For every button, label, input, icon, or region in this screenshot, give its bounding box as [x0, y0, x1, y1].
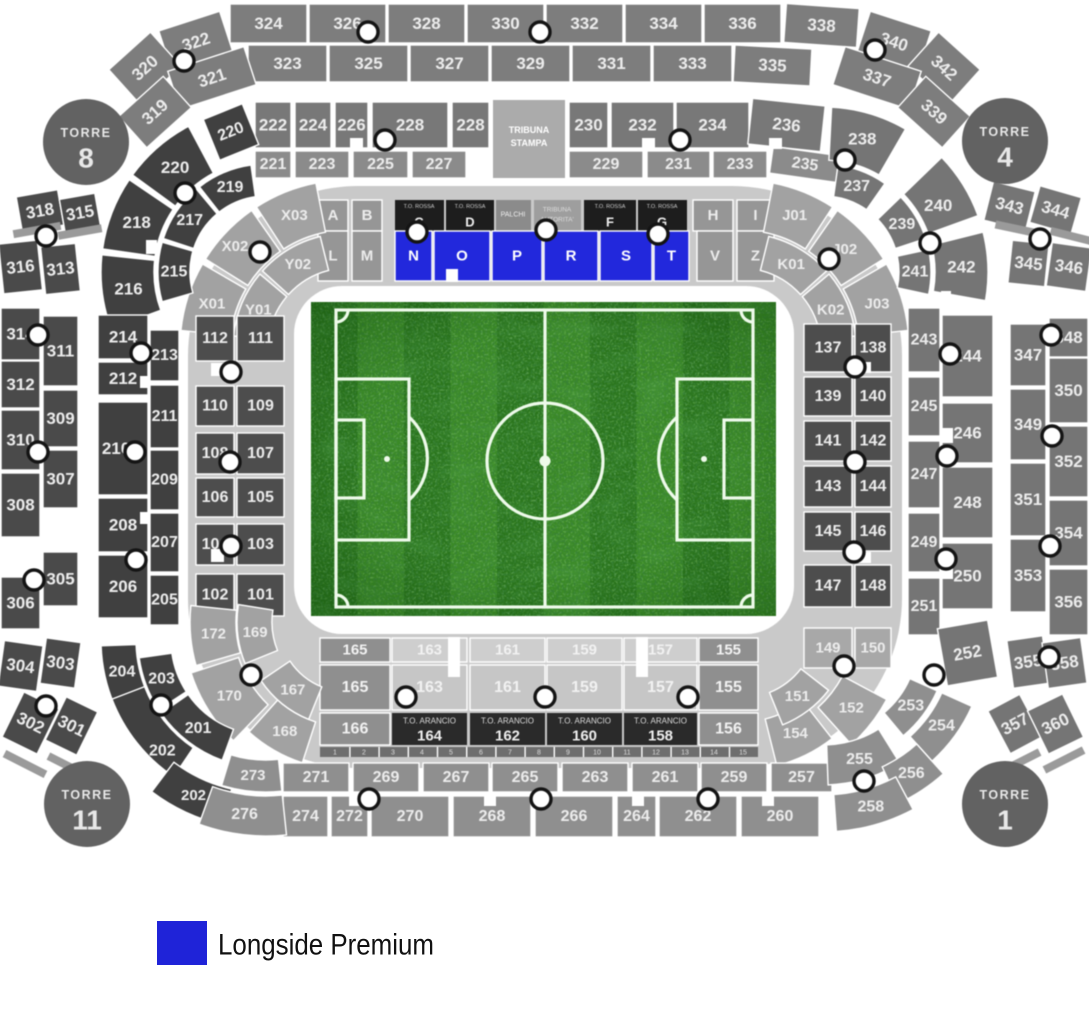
svg-text:260: 260	[767, 808, 794, 825]
svg-text:102: 102	[202, 587, 229, 604]
svg-text:PALCHI: PALCHI	[501, 212, 526, 219]
svg-text:236: 236	[771, 114, 801, 136]
svg-text:K02: K02	[817, 301, 845, 318]
svg-text:145: 145	[815, 523, 842, 540]
svg-text:Z: Z	[751, 248, 760, 265]
svg-text:148: 148	[860, 578, 887, 595]
svg-text:265: 265	[512, 769, 539, 786]
svg-text:220: 220	[161, 158, 189, 177]
svg-text:307: 307	[46, 470, 74, 489]
svg-text:215: 215	[161, 264, 188, 281]
svg-text:F: F	[606, 215, 614, 230]
svg-text:12: 12	[652, 750, 660, 757]
svg-text:251: 251	[911, 598, 938, 615]
svg-text:142: 142	[860, 433, 887, 450]
svg-text:157: 157	[647, 679, 674, 696]
svg-text:241: 241	[902, 264, 929, 281]
svg-text:T.O. ROSSA: T.O. ROSSA	[455, 204, 486, 210]
svg-text:6: 6	[479, 750, 483, 757]
svg-text:P: P	[512, 248, 522, 265]
svg-text:103: 103	[247, 536, 274, 553]
svg-text:111: 111	[248, 330, 273, 347]
svg-text:228: 228	[396, 116, 424, 135]
svg-text:208: 208	[109, 516, 137, 535]
svg-text:165: 165	[342, 679, 369, 696]
svg-text:TORRE: TORRE	[979, 788, 1030, 802]
svg-text:5: 5	[449, 750, 453, 757]
svg-text:T.O. ARANCIO: T.O. ARANCIO	[403, 717, 456, 726]
svg-text:T.O. ROSSA: T.O. ROSSA	[595, 204, 626, 210]
svg-text:212: 212	[109, 369, 137, 388]
svg-text:164: 164	[417, 728, 443, 745]
svg-text:A: A	[328, 207, 339, 224]
svg-text:276: 276	[231, 806, 258, 823]
svg-text:N: N	[408, 248, 419, 265]
svg-text:151: 151	[785, 688, 810, 705]
svg-text:X01: X01	[199, 295, 226, 312]
svg-text:10: 10	[593, 750, 601, 757]
svg-text:9: 9	[566, 750, 570, 757]
svg-text:146: 146	[860, 523, 887, 540]
svg-text:230: 230	[574, 116, 602, 135]
svg-text:352: 352	[1054, 452, 1082, 471]
svg-text:333: 333	[678, 54, 706, 73]
svg-text:270: 270	[397, 808, 424, 825]
svg-text:304: 304	[5, 655, 36, 678]
svg-text:T.O. ARANCIO: T.O. ARANCIO	[558, 717, 611, 726]
svg-text:TRIBUNA: TRIBUNA	[509, 125, 550, 135]
svg-text:226: 226	[337, 116, 365, 135]
svg-text:101: 101	[247, 587, 274, 604]
svg-text:273: 273	[240, 767, 265, 784]
svg-text:231: 231	[665, 156, 692, 173]
svg-text:V: V	[710, 248, 720, 265]
svg-text:330: 330	[491, 14, 519, 33]
svg-text:350: 350	[1054, 381, 1082, 400]
svg-text:269: 269	[373, 769, 400, 786]
svg-text:13: 13	[681, 750, 689, 757]
svg-text:349: 349	[1014, 415, 1042, 434]
svg-text:X03: X03	[281, 207, 308, 224]
svg-text:154: 154	[783, 725, 809, 742]
svg-text:T.O. ARANCIO: T.O. ARANCIO	[634, 717, 687, 726]
svg-text:H: H	[708, 207, 719, 224]
svg-text:202: 202	[181, 787, 206, 804]
svg-text:15: 15	[739, 750, 747, 757]
svg-text:306: 306	[6, 594, 34, 613]
svg-text:258: 258	[857, 798, 884, 815]
svg-text:163: 163	[417, 642, 442, 659]
svg-text:161: 161	[494, 679, 521, 696]
svg-text:B: B	[362, 207, 373, 224]
svg-text:107: 107	[247, 445, 274, 462]
svg-text:T.O. ROSSA: T.O. ROSSA	[647, 204, 678, 210]
svg-text:325: 325	[354, 54, 382, 73]
svg-text:272: 272	[336, 808, 363, 825]
svg-text:225: 225	[367, 156, 394, 173]
svg-text:205: 205	[151, 592, 178, 609]
svg-text:216: 216	[114, 279, 142, 298]
svg-text:137: 137	[815, 340, 842, 357]
svg-text:218: 218	[123, 213, 151, 232]
svg-text:267: 267	[443, 769, 470, 786]
svg-text:156: 156	[715, 721, 742, 738]
svg-text:O: O	[456, 248, 468, 265]
svg-text:209: 209	[151, 472, 178, 489]
svg-text:138: 138	[860, 340, 887, 357]
svg-text:11: 11	[72, 805, 102, 836]
svg-text:155: 155	[715, 679, 742, 696]
svg-text:149: 149	[815, 640, 840, 657]
svg-text:323: 323	[273, 54, 301, 73]
svg-text:214: 214	[109, 328, 138, 347]
svg-text:166: 166	[342, 721, 369, 738]
svg-text:313: 313	[45, 258, 75, 280]
svg-text:STAMPA: STAMPA	[511, 138, 548, 148]
svg-text:201: 201	[185, 720, 212, 737]
svg-text:163: 163	[416, 679, 443, 696]
svg-text:268: 268	[479, 808, 506, 825]
svg-text:328: 328	[412, 14, 440, 33]
svg-text:M: M	[361, 248, 374, 265]
svg-text:172: 172	[201, 625, 226, 642]
svg-text:157: 157	[648, 642, 673, 659]
svg-text:264: 264	[623, 808, 650, 825]
svg-text:162: 162	[495, 728, 520, 745]
svg-text:159: 159	[572, 642, 597, 659]
svg-text:316: 316	[5, 256, 35, 278]
svg-text:141: 141	[815, 433, 842, 450]
svg-text:228: 228	[456, 116, 484, 135]
svg-text:TORRE: TORRE	[61, 788, 112, 802]
svg-text:152: 152	[839, 700, 864, 717]
svg-text:308: 308	[6, 496, 34, 515]
svg-text:TORRE: TORRE	[979, 125, 1030, 139]
svg-text:233: 233	[727, 156, 754, 173]
svg-text:1: 1	[997, 805, 1013, 836]
svg-text:331: 331	[597, 54, 625, 73]
svg-text:324: 324	[254, 14, 283, 33]
svg-text:147: 147	[815, 578, 842, 595]
svg-text:335: 335	[758, 55, 787, 75]
svg-text:271: 271	[303, 769, 330, 786]
svg-text:109: 109	[247, 398, 274, 415]
svg-text:211: 211	[152, 408, 178, 425]
svg-text:150: 150	[860, 640, 885, 657]
svg-text:249: 249	[911, 534, 938, 551]
svg-text:309: 309	[46, 409, 74, 428]
svg-text:345: 345	[1013, 253, 1043, 275]
svg-text:170: 170	[217, 688, 242, 705]
svg-text:206: 206	[109, 577, 137, 596]
svg-text:T.O. ROSSA: T.O. ROSSA	[404, 204, 435, 210]
svg-text:R: R	[566, 248, 577, 265]
svg-text:303: 303	[45, 652, 76, 675]
svg-text:356: 356	[1054, 593, 1082, 612]
svg-text:353: 353	[1014, 566, 1042, 585]
svg-text:4: 4	[997, 142, 1013, 173]
svg-text:261: 261	[652, 769, 679, 786]
svg-text:I: I	[753, 207, 757, 224]
svg-text:213: 213	[151, 347, 178, 364]
svg-text:227: 227	[426, 156, 453, 173]
svg-text:346: 346	[1054, 256, 1085, 279]
svg-text:239: 239	[889, 216, 916, 233]
svg-text:207: 207	[151, 534, 178, 551]
svg-text:312: 312	[6, 375, 34, 394]
svg-text:254: 254	[928, 718, 955, 735]
svg-text:338: 338	[807, 15, 837, 36]
svg-text:J03: J03	[864, 295, 889, 312]
svg-text:D: D	[465, 215, 474, 230]
svg-text:250: 250	[953, 567, 981, 586]
svg-text:8: 8	[78, 143, 94, 174]
svg-text:221: 221	[260, 156, 287, 173]
svg-text:110: 110	[202, 398, 228, 415]
svg-text:Longside Premium: Longside Premium	[218, 929, 434, 962]
svg-text:112: 112	[202, 330, 228, 347]
svg-text:140: 140	[860, 388, 887, 405]
svg-text:TRIBUNA: TRIBUNA	[543, 207, 572, 214]
svg-text:106: 106	[202, 489, 229, 506]
svg-text:266: 266	[561, 808, 588, 825]
svg-text:247: 247	[911, 466, 938, 483]
svg-text:334: 334	[649, 14, 678, 33]
svg-text:T: T	[667, 248, 676, 265]
svg-text:246: 246	[953, 424, 981, 443]
svg-text:144: 144	[860, 478, 887, 495]
svg-text:311: 311	[47, 342, 74, 361]
svg-text:204: 204	[109, 663, 136, 680]
svg-text:T.O. ARANCIO: T.O. ARANCIO	[481, 717, 534, 726]
svg-text:K01: K01	[777, 256, 805, 273]
svg-text:165: 165	[342, 642, 367, 659]
svg-text:TORRE: TORRE	[60, 126, 111, 140]
svg-text:143: 143	[815, 478, 842, 495]
svg-text:242: 242	[947, 258, 975, 277]
svg-text:S: S	[621, 248, 631, 265]
svg-text:2: 2	[362, 750, 366, 757]
svg-text:248: 248	[953, 493, 981, 512]
svg-text:259: 259	[721, 769, 748, 786]
svg-text:238: 238	[848, 130, 876, 149]
svg-text:351: 351	[1014, 490, 1042, 509]
svg-text:202: 202	[149, 743, 176, 760]
svg-text:229: 229	[593, 156, 620, 173]
svg-text:253: 253	[897, 698, 924, 715]
svg-text:256: 256	[898, 765, 925, 782]
svg-text:3: 3	[391, 750, 395, 757]
svg-text:J01: J01	[782, 207, 807, 224]
svg-text:7: 7	[508, 750, 512, 757]
svg-text:274: 274	[292, 808, 319, 825]
svg-text:161: 161	[495, 642, 520, 659]
svg-text:203: 203	[148, 671, 175, 688]
svg-text:14: 14	[710, 750, 718, 757]
svg-text:336: 336	[728, 14, 756, 33]
svg-text:223: 223	[309, 156, 336, 173]
svg-text:168: 168	[272, 723, 297, 740]
svg-text:240: 240	[924, 196, 952, 215]
svg-text:237: 237	[843, 178, 870, 195]
svg-text:160: 160	[572, 728, 597, 745]
svg-text:X02: X02	[222, 238, 249, 255]
svg-text:158: 158	[648, 728, 673, 745]
svg-text:155: 155	[716, 642, 741, 659]
svg-text:11: 11	[623, 750, 630, 757]
svg-text:263: 263	[582, 769, 609, 786]
svg-text:1: 1	[333, 750, 337, 757]
svg-text:L: L	[328, 248, 337, 265]
svg-text:327: 327	[435, 54, 463, 73]
svg-text:245: 245	[911, 398, 938, 415]
svg-text:329: 329	[516, 54, 544, 73]
svg-text:243: 243	[911, 332, 938, 349]
svg-text:347: 347	[1014, 346, 1042, 365]
svg-text:Y02: Y02	[284, 256, 311, 273]
svg-text:219: 219	[217, 179, 244, 196]
svg-text:257: 257	[788, 769, 815, 786]
svg-text:217: 217	[176, 212, 203, 229]
svg-text:169: 169	[243, 624, 268, 641]
svg-text:332: 332	[570, 14, 598, 33]
svg-text:224: 224	[299, 116, 328, 135]
svg-text:159: 159	[571, 679, 598, 696]
svg-text:4: 4	[420, 750, 424, 757]
svg-text:234: 234	[698, 116, 727, 135]
svg-text:222: 222	[259, 116, 287, 135]
svg-text:105: 105	[247, 489, 274, 506]
svg-text:167: 167	[280, 682, 305, 699]
svg-text:232: 232	[628, 116, 656, 135]
svg-text:305: 305	[46, 570, 74, 589]
svg-text:139: 139	[815, 388, 842, 405]
svg-text:255: 255	[846, 751, 873, 768]
svg-text:8: 8	[537, 750, 541, 757]
